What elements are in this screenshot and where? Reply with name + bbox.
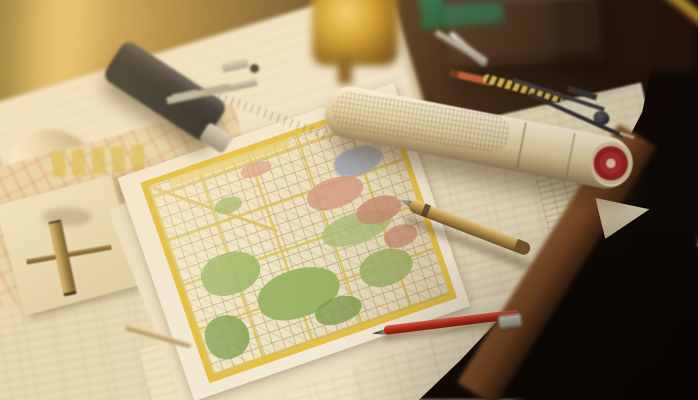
brass-instrument-stem (338, 58, 352, 84)
brass-instrument (312, 0, 398, 66)
desk-scene-photo (0, 0, 698, 400)
fountain-pen-end-cap (513, 239, 532, 257)
fountain-pen (396, 186, 551, 258)
fountain-pen-grip-band (421, 203, 431, 217)
roll-seam (517, 122, 528, 167)
caliper-knob (250, 64, 259, 73)
caliper-jaw (203, 83, 230, 96)
caliper-head (221, 57, 249, 72)
thick-book (442, 0, 604, 68)
red-ballpoint-pen (372, 308, 537, 348)
red-pen-steel-clip (497, 313, 523, 330)
steel-caliper (160, 50, 270, 110)
